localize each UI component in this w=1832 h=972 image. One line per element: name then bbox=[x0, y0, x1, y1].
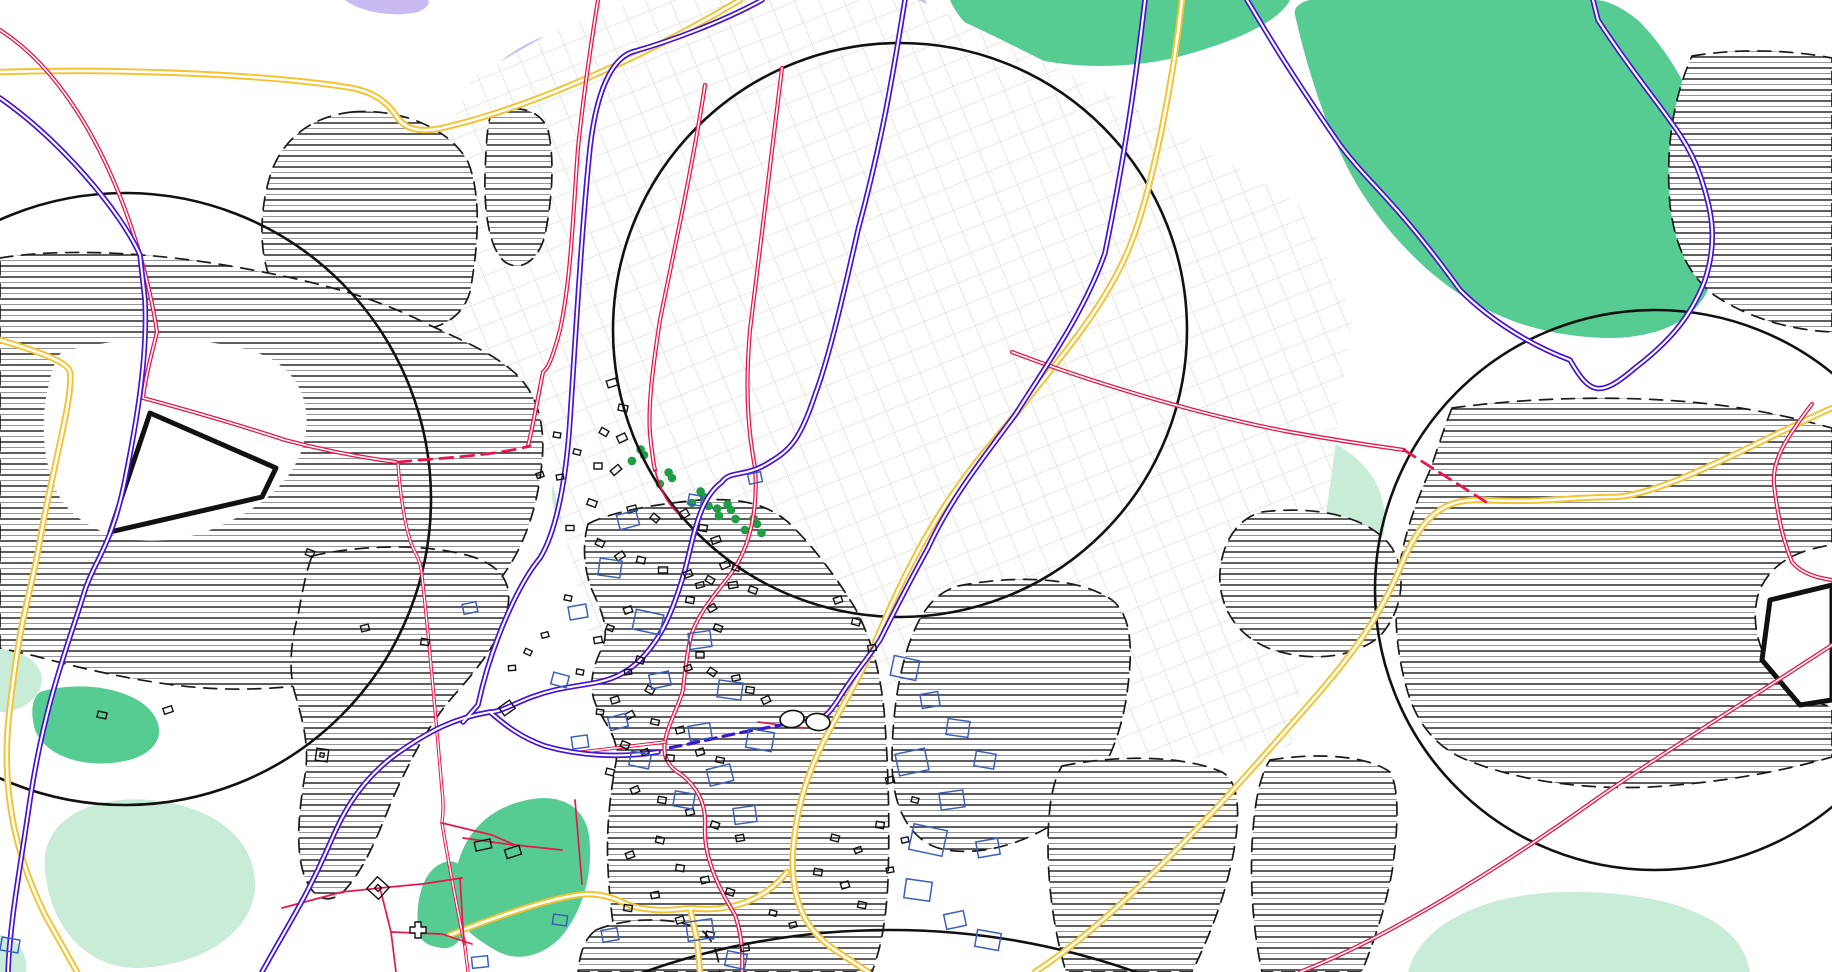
village-tree-clusters-2-tree bbox=[757, 529, 766, 538]
city-block-unit-line bbox=[81, 157, 105, 167]
city-trees-8-tree bbox=[64, 201, 75, 212]
city-block-unit-line bbox=[39, 97, 63, 107]
city-block-8 bbox=[42, 30, 90, 99]
village-buildings-black-54 bbox=[508, 665, 515, 671]
village-tree-clusters-0-tree bbox=[696, 487, 705, 496]
pale-green-areas-6 bbox=[0, 935, 26, 972]
village-buildings-black-57 bbox=[564, 595, 572, 601]
pale-green-areas-9 bbox=[1408, 892, 1750, 972]
city-block-unit-line bbox=[61, 184, 85, 194]
village-tree-clusters-1-tree bbox=[715, 512, 724, 521]
village-buildings-blue-26 bbox=[975, 930, 1002, 951]
village-buildings-black-86 bbox=[901, 837, 909, 843]
city-block-unit-line bbox=[3, 83, 27, 93]
city-trees-8-tree bbox=[76, 211, 87, 222]
city-block-unit-line bbox=[50, 51, 74, 61]
village-buildings-blue-5 bbox=[551, 672, 570, 688]
village-tree-clusters-1-tree bbox=[731, 515, 740, 524]
red-thin-roads-casing-1 bbox=[380, 888, 396, 972]
forest-hatch-areas-6 bbox=[1396, 398, 1832, 787]
village-buildings-blue-12 bbox=[571, 735, 589, 749]
city-courtyard-4 bbox=[11, 156, 75, 238]
forest-hatch-areas-2 bbox=[485, 109, 552, 266]
village-tree-clusters-1-tree bbox=[723, 500, 732, 509]
city-block-unit-line bbox=[76, 241, 100, 251]
village-buildings-black-92 bbox=[163, 706, 173, 714]
city-block-unit-line bbox=[103, 234, 127, 244]
city-block-15 bbox=[0, 157, 17, 248]
map-canvas[interactable] bbox=[0, 0, 1832, 972]
city-block-6 bbox=[0, 42, 44, 133]
city-trees-4-tree bbox=[0, 136, 9, 147]
village-tree-clusters-3-tree bbox=[664, 468, 673, 477]
circles-of-influence-3 bbox=[150, 930, 1630, 972]
city-block-unit-line bbox=[0, 170, 19, 180]
lavender-areas-2 bbox=[345, 0, 429, 14]
pale-green-areas-4 bbox=[45, 799, 255, 968]
map-layers-root bbox=[0, 0, 1832, 972]
city-trees-8-tree bbox=[69, 205, 80, 216]
village-buildings-black-61 bbox=[605, 768, 614, 776]
city-street-red-thin-casing-3 bbox=[0, 99, 84, 249]
village-tree-clusters-1-tree bbox=[713, 504, 722, 513]
village-buildings-black-52 bbox=[541, 632, 549, 639]
city-trees-8-tree bbox=[60, 215, 71, 226]
village-buildings-black-53 bbox=[524, 648, 532, 655]
village-buildings-black-51 bbox=[576, 669, 584, 675]
medium-green-areas-2 bbox=[454, 798, 590, 957]
village-buildings-blue-25 bbox=[944, 911, 967, 930]
village-tree-clusters-4-tree bbox=[628, 457, 637, 466]
village-buildings-blue-31 bbox=[471, 956, 488, 969]
city-trees-4-tree bbox=[6, 143, 17, 154]
map-viewport[interactable] bbox=[0, 0, 1832, 972]
village-buildings-blue-24 bbox=[904, 879, 932, 901]
city-trees-4-tree bbox=[0, 133, 4, 144]
